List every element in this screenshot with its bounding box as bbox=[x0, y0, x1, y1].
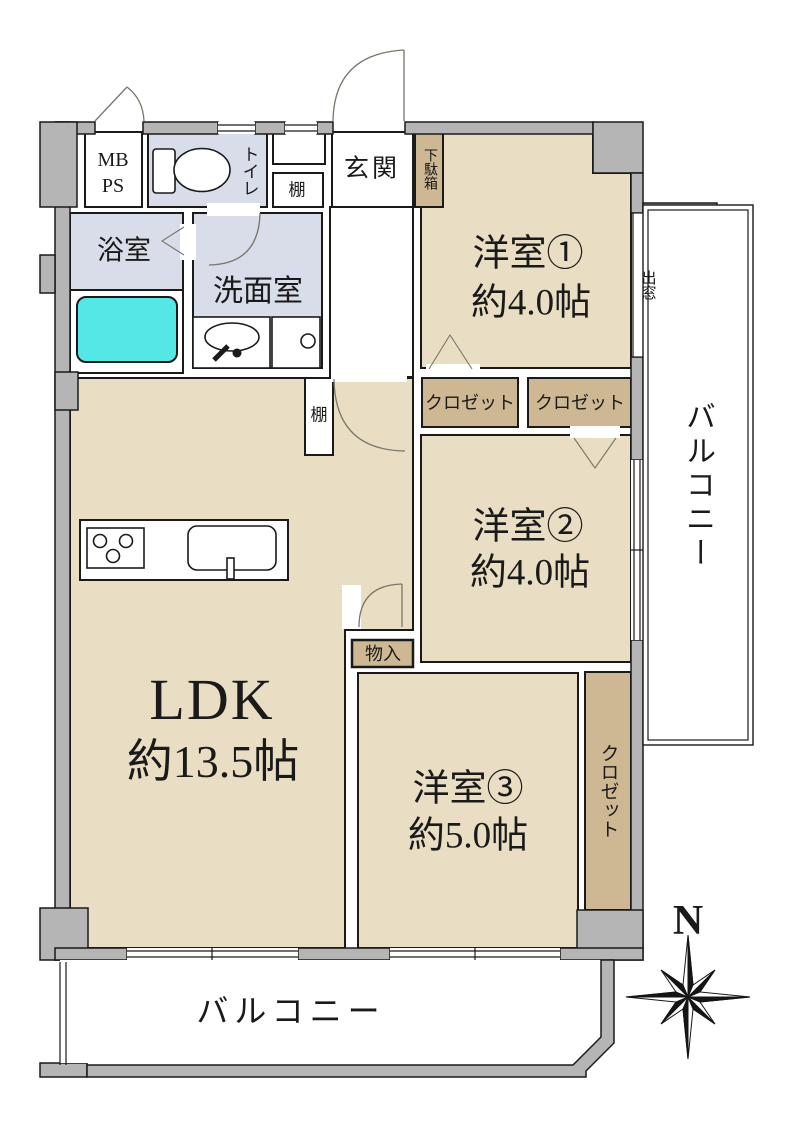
toilet-bowl bbox=[174, 149, 230, 192]
balcony-bottom-label: バルコニー bbox=[196, 995, 385, 1027]
hallway bbox=[330, 207, 413, 377]
washroom-label: 洗面室 bbox=[213, 277, 303, 307]
bathtub bbox=[77, 297, 177, 362]
balcony-right-label: バルコニー bbox=[682, 401, 712, 571]
western1-label: 洋室① bbox=[473, 236, 584, 273]
room-western2 bbox=[421, 435, 631, 662]
toilet-label: トイレ bbox=[241, 146, 258, 197]
closet2-label: クロゼット bbox=[535, 394, 625, 412]
meter-box-label-line2: PS bbox=[102, 176, 124, 196]
compass-north-label: N bbox=[673, 900, 703, 942]
ldk-label: LDK bbox=[149, 671, 274, 729]
compass-rose bbox=[626, 935, 750, 1059]
washer-space bbox=[272, 317, 320, 368]
western3-size: 約5.0帖 bbox=[408, 818, 528, 855]
storage-small-label: 物入 bbox=[365, 645, 401, 663]
closet1-label: クロゼット bbox=[425, 394, 515, 412]
entrance-label: 玄関 bbox=[344, 157, 400, 182]
shelf-entrance-label: 棚 bbox=[289, 182, 306, 199]
western1-size: 約4.0帖 bbox=[471, 285, 591, 322]
bay-window-label: 出窓 bbox=[640, 270, 655, 300]
sink-bowl bbox=[205, 323, 259, 351]
ldk-size: 約13.5帖 bbox=[127, 739, 300, 785]
meter-box-label-line1: MB bbox=[97, 150, 128, 170]
western2-size: 約4.0帖 bbox=[470, 555, 590, 592]
shelf-box-upper bbox=[273, 132, 325, 164]
kitchen-faucet bbox=[227, 558, 234, 579]
shelf-ldk-label: 棚 bbox=[311, 407, 328, 424]
western2-label: 洋室② bbox=[473, 509, 584, 546]
room-western3 bbox=[358, 673, 578, 948]
shoe-cabinet-label: 下駄箱 bbox=[422, 148, 436, 190]
closet3-label: クロゼット bbox=[599, 744, 618, 839]
bathroom-label: 浴室 bbox=[97, 238, 151, 265]
floor-plan: MB PS トイレ 棚 玄関 下駄箱 洋室① 約4.0帖 出窓 浴室 洗面室 棚… bbox=[0, 0, 786, 1127]
western3-label: 洋室③ bbox=[413, 771, 524, 808]
toilet-tank bbox=[153, 149, 175, 193]
